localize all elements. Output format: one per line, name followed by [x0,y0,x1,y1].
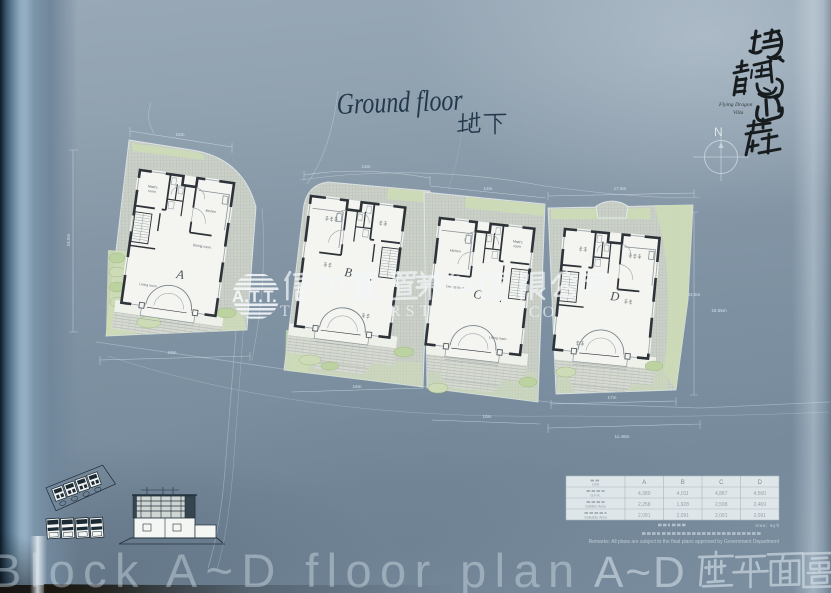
svg-text:B: B [681,480,685,486]
svg-text:CO.L: CO.L [529,304,577,321]
svg-text:24.5m: 24.5m [66,233,71,246]
svg-text:2,091: 2,091 [638,513,651,519]
svg-text:4,560: 4,560 [753,491,766,497]
svg-text:16m: 16m [353,384,362,389]
svg-text:Villa: Villa [733,110,744,116]
svg-text:N: N [714,125,723,139]
svg-text:T: T [280,303,290,320]
svg-text:D: D [609,289,620,304]
svg-text:A: A [642,480,646,486]
svg-text:Saleable Area: Saleable Area [584,516,606,520]
svg-text:A.T.T.: A.T.T. [232,288,277,306]
svg-text:2,091: 2,091 [753,513,766,519]
svg-text:Area：sq ft: Area：sq ft [755,523,780,529]
svg-text:RST: RST [390,303,434,320]
svg-text:4,389: 4,389 [638,491,651,497]
svg-text:4,887: 4,887 [715,491,728,497]
svg-text:15m: 15m [176,132,185,137]
svg-text:14m: 14m [484,186,493,191]
svg-text:Block A~D floor plan: Block A~D floor plan [0,544,583,593]
svg-text:24.5m: 24.5m [688,292,701,297]
svg-text:Garden Area: Garden Area [585,505,605,509]
svg-text:2,258: 2,258 [638,502,651,508]
svg-text:C: C [719,480,724,486]
svg-text:16m: 16m [168,350,177,355]
svg-text:16m: 16m [483,414,492,419]
svg-text:A~D: A~D [594,548,687,593]
svg-text:D: D [758,480,763,486]
svg-text:G.F.A.: G.F.A. [591,494,601,498]
svg-text:2,469: 2,469 [753,502,766,508]
svg-text:18.55m: 18.55m [711,308,726,313]
svg-text:2,598: 2,598 [715,502,728,508]
svg-text:2,091: 2,091 [715,513,728,519]
svg-text:2,091: 2,091 [676,513,689,519]
svg-text:Ground floor: Ground floor [336,84,463,121]
svg-text:Unit: Unit [592,483,598,487]
svg-text:17.5m: 17.5m [614,186,627,191]
svg-text:Remarks: All plans are subject: Remarks: All plans are subject to the fi… [589,539,780,545]
svg-text:14m: 14m [362,164,371,169]
svg-text:17m: 17m [608,395,617,400]
svg-text:4,011: 4,011 [677,491,689,497]
svg-text:1,928: 1,928 [676,502,689,508]
svg-text:Flying Dragon: Flying Dragon [718,102,753,108]
svg-text:11.46m: 11.46m [615,434,630,439]
